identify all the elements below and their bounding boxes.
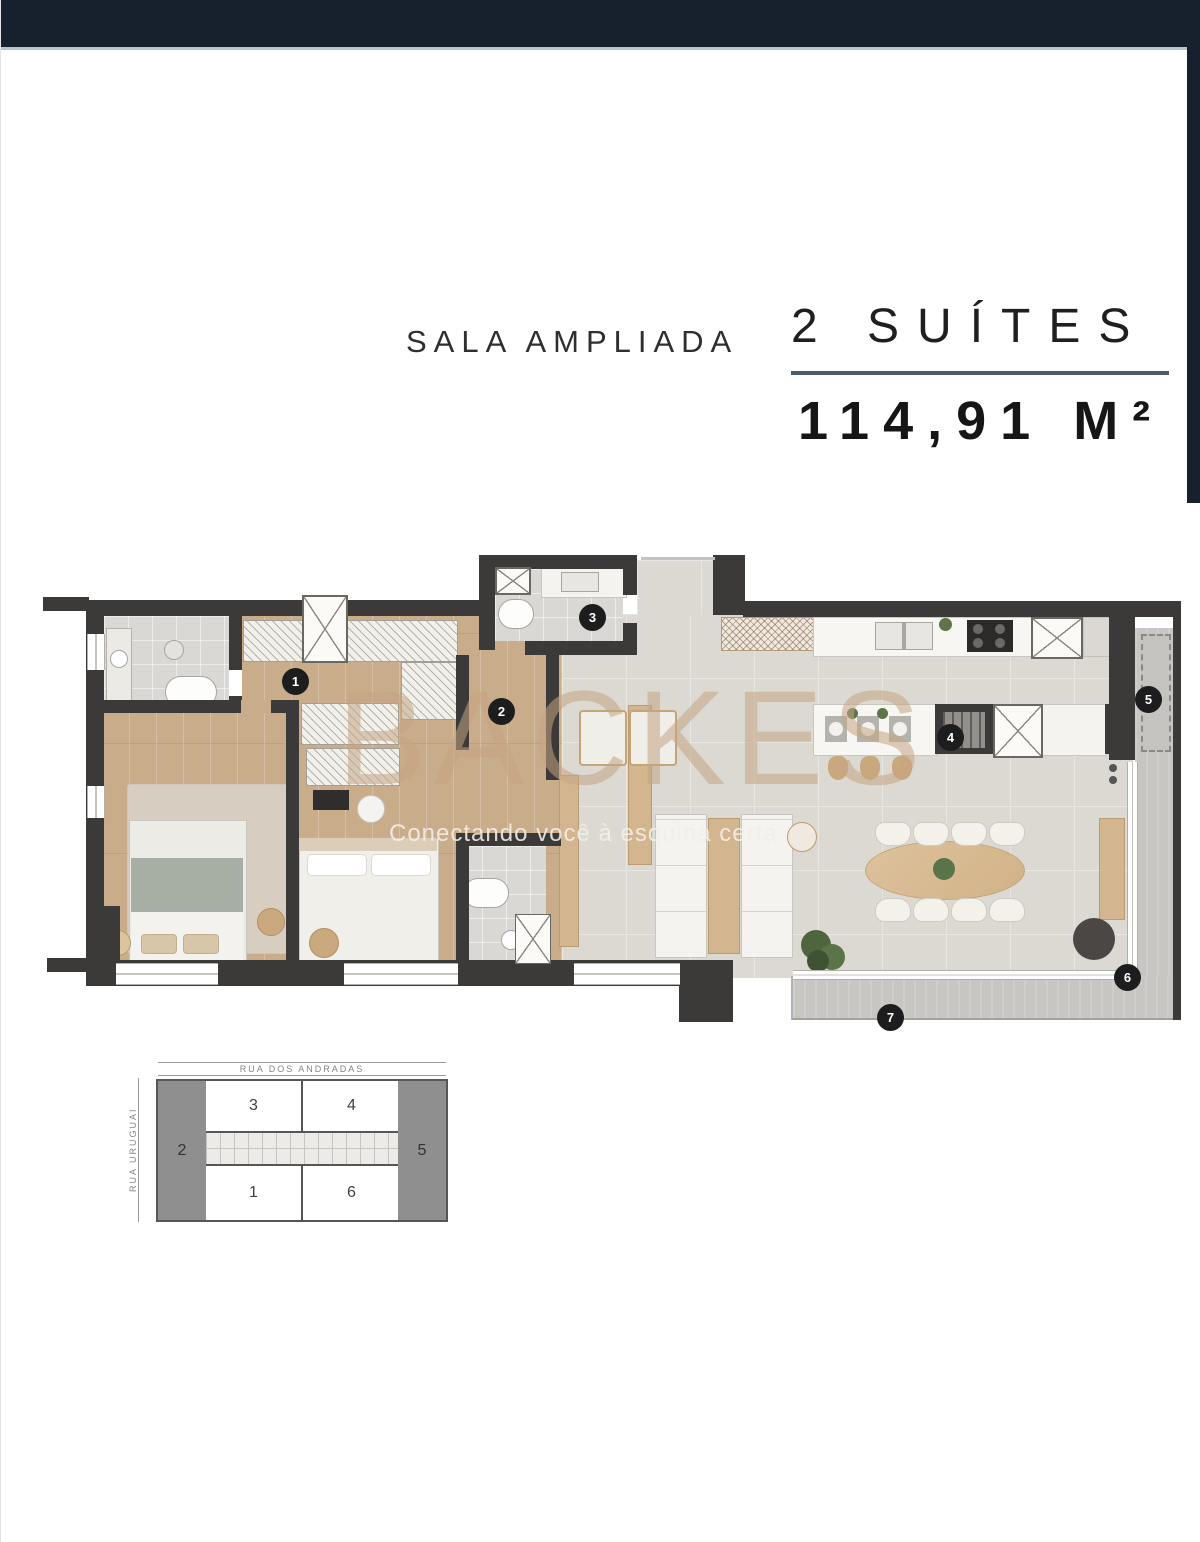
burner-1: [973, 624, 983, 634]
wall-bath3-left: [479, 555, 495, 650]
marker-4: 4: [937, 724, 964, 751]
wall-bath3-right-a: [623, 569, 637, 595]
sink-bath1: [110, 650, 128, 668]
round-pouf-dark: [1073, 918, 1115, 960]
marker-7: 7: [877, 1004, 904, 1031]
street-label-left: RUA URUGUAI: [128, 1078, 142, 1222]
key-corridor: [206, 1131, 398, 1166]
window-living-bottom: [574, 963, 680, 985]
wall-stub-top-left: [43, 597, 89, 611]
closet-suite1-a: [243, 620, 303, 662]
marker-3: 3: [579, 604, 606, 631]
side-table: [787, 822, 817, 852]
wall-top-right-run: [743, 601, 1181, 617]
shaft-box: [302, 595, 348, 663]
door-suite1: [241, 700, 271, 713]
cabinet-bath3: [495, 567, 531, 595]
key-plan-top-line-2: [158, 1075, 446, 1076]
key-plan-top-line-1: [158, 1062, 446, 1063]
bed-suite1-blanket: [131, 858, 243, 912]
key-unit-left: 2: [158, 1081, 206, 1220]
wall-kitchen-notch: [713, 555, 745, 615]
marker-5: 5: [1135, 686, 1162, 713]
toilet-bath2: [463, 878, 509, 908]
key-unit-right: 5: [398, 1081, 446, 1220]
window-suite1-bottom: [116, 963, 218, 985]
door-bath1: [229, 670, 242, 696]
dining-centerpiece-plant: [933, 858, 955, 880]
sink-bath3: [561, 572, 599, 592]
dining-chair-bottom-2: [913, 898, 949, 922]
window-suite2-bottom: [344, 963, 458, 985]
entry-door-header: [641, 557, 715, 560]
watermark-tagline: Conectando você à esquina certa: [389, 820, 778, 848]
shower-bath2: [515, 914, 551, 964]
entry-floor: [637, 560, 713, 615]
bed-suite2-pillow-right: [371, 854, 431, 876]
floor-plant-blob-3: [807, 950, 829, 972]
toilet-bath3: [498, 599, 534, 629]
counter-plant: [939, 618, 952, 631]
wall-top-left-run: [89, 600, 481, 616]
wall-suite-divider: [286, 700, 299, 963]
street-label-top: RUA DOS ANDRADAS: [158, 1064, 446, 1074]
glass-door-right: [1127, 762, 1138, 972]
watermark-brand: BACKES: [337, 662, 929, 815]
pantry-cabinet: [993, 704, 1043, 758]
door-pivot-dot-2: [1109, 776, 1117, 784]
wall-block-bottom-middle: [679, 960, 733, 1022]
dining-chair-bottom-3: [951, 898, 987, 922]
wall-right-edge: [1173, 615, 1181, 1020]
marker-6: 6: [1114, 964, 1141, 991]
bed-suite1-pillow-right: [183, 934, 219, 954]
burner-2: [995, 624, 1005, 634]
window-suite1: [87, 786, 105, 818]
cabinet-end-cap: [1105, 704, 1119, 754]
wall-corridor-left-b: [456, 833, 469, 963]
wall-stub-bottom-left: [47, 958, 87, 972]
marker-2: 2: [488, 698, 515, 725]
dining-chair-bottom-4: [989, 898, 1025, 922]
key-plan-building: 2 5 3 4 1 6: [156, 1079, 448, 1222]
bed-suite2-pillow-left: [307, 854, 367, 876]
door-pivot-dot-1: [1109, 764, 1117, 772]
closet-suite1-b: [346, 620, 458, 662]
burner-4: [995, 638, 1005, 648]
glass-door-bottom: [793, 970, 1131, 980]
dining-chair-top-2: [913, 822, 949, 846]
fridge: [1031, 617, 1083, 659]
shower-head-bath1: [164, 640, 184, 660]
key-unit-bottom-left: 1: [206, 1166, 303, 1220]
key-unit-top-right: 4: [305, 1081, 398, 1131]
dining-chair-bottom-1: [875, 898, 911, 922]
brochure-page: SALA AMPLIADA 2 SUÍTES 114,91 M²: [0, 0, 1200, 1542]
wall-bath3-bottom: [525, 641, 637, 655]
marker-1: 1: [282, 668, 309, 695]
burner-3: [973, 638, 983, 648]
bed-suite1-pillow-left: [141, 934, 177, 954]
key-unit-bottom-right: 6: [305, 1166, 398, 1220]
kitchen-sink: [875, 622, 933, 650]
key-unit-top-left: 3: [206, 1081, 303, 1131]
dining-chair-top-3: [951, 822, 987, 846]
wine-rack: [721, 617, 815, 651]
kitchen-cabinet-long: [1041, 704, 1107, 756]
pouf-suite1: [257, 908, 285, 936]
sideboard-right: [1099, 818, 1125, 920]
pouf-suite2: [309, 928, 339, 958]
dining-chair-top-1: [875, 822, 911, 846]
window-bath1: [87, 634, 105, 670]
dining-chair-top-4: [989, 822, 1025, 846]
